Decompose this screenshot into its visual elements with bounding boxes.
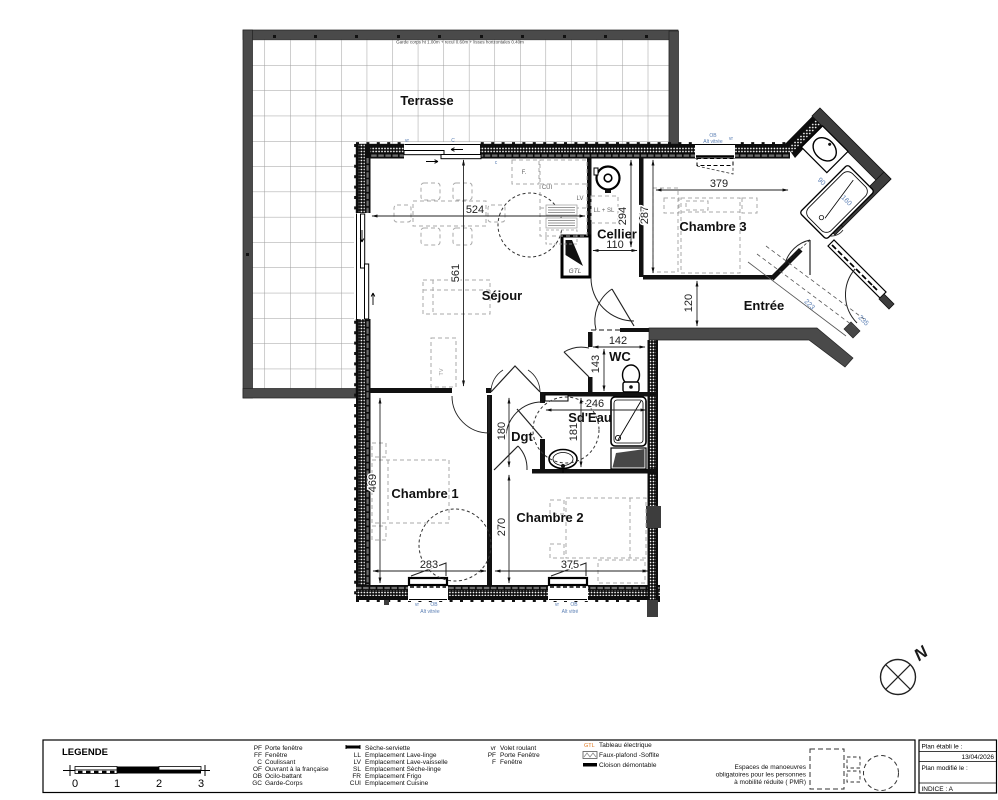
svg-text:F.: F. [522,170,527,176]
svg-text:Ocilo-battant: Ocilo-battant [265,773,302,780]
svg-text:379: 379 [710,178,728,190]
svg-text:120: 120 [683,294,695,312]
svg-text:Porte fenêtre: Porte fenêtre [265,745,303,752]
svg-text:vr: vr [405,138,410,144]
svg-text:Porte Fenêtre: Porte Fenêtre [500,752,540,759]
svg-text:LEGENDE: LEGENDE [62,747,108,758]
svg-text:2: 2 [156,778,162,790]
svg-text:GTL: GTL [569,268,582,275]
svg-text:1: 1 [114,778,120,790]
svg-text:Volet roulant: Volet roulant [500,745,536,752]
svg-text:vr: vr [555,602,560,608]
svg-text:LV: LV [577,196,584,202]
svg-text:WC: WC [609,349,631,364]
svg-text:SL: SL [353,766,361,773]
svg-text:LL: LL [354,752,362,759]
svg-text:270: 270 [496,518,508,536]
svg-text:13/04/2026: 13/04/2026 [961,754,994,761]
svg-text:vr: vr [415,602,420,608]
svg-text:Ouvrant à la française: Ouvrant à la française [265,766,329,773]
svg-text:GC: GC [252,780,262,787]
svg-text:FR: FR [352,773,361,780]
svg-text:Garde corps ht 1.00m + recul 0: Garde corps ht 1.00m + recul 0.60m + lis… [396,40,524,45]
svg-text:Emplacement Lave-vaisselle: Emplacement Lave-vaisselle [365,759,448,766]
svg-text:Alt vitré: Alt vitré [562,609,579,615]
svg-text:OF: OF [253,766,262,773]
svg-text:Garde-Corps: Garde-Corps [265,780,303,787]
svg-text:Plan établi le :: Plan établi le : [922,744,963,751]
svg-text:142: 142 [609,335,627,347]
svg-text:Fenêtre: Fenêtre [265,752,288,759]
svg-text:Cloison démontable: Cloison démontable [599,762,657,769]
svg-text:287: 287 [639,206,651,224]
svg-text:FF: FF [254,752,262,759]
svg-text:0: 0 [72,778,78,790]
svg-text:PF: PF [488,752,496,759]
svg-text:180: 180 [496,422,508,440]
svg-text:CUI: CUI [350,780,361,787]
svg-text:Séjour: Séjour [482,288,522,303]
svg-text:Sèche-serviette: Sèche-serviette [365,745,411,752]
svg-text:à mobilité réduite ( PMR): à mobilité réduite ( PMR) [734,779,806,786]
svg-text:Emplacement Frigo: Emplacement Frigo [365,773,422,780]
svg-text:Coulissant: Coulissant [265,759,296,766]
svg-text:246: 246 [586,398,604,410]
svg-text:181: 181 [568,423,580,441]
svg-text:LL + SL: LL + SL [594,208,615,214]
svg-text:Emplacement Sèche-linge: Emplacement Sèche-linge [365,766,441,773]
svg-text:561: 561 [450,264,462,282]
svg-text:INDICE : A: INDICE : A [922,786,954,793]
svg-text:Dgt: Dgt [511,429,533,444]
svg-text:375: 375 [561,559,579,571]
svg-text:CUI: CUI [542,185,553,191]
svg-text:Alt vitrée: Alt vitrée [420,609,440,615]
svg-text:Fenêtre: Fenêtre [500,759,523,766]
svg-text:Entrée: Entrée [744,298,784,313]
svg-text:OB: OB [253,773,262,780]
svg-text:Chambre 2: Chambre 2 [516,510,583,525]
svg-text:Sd'Eau: Sd'Eau [568,410,612,425]
svg-text:Alt vitrée: Alt vitrée [703,139,723,145]
svg-text:Tableau électrique: Tableau électrique [599,742,652,749]
svg-text:Chambre 1: Chambre 1 [391,486,458,501]
svg-text:Espaces de manoeuvres: Espaces de manoeuvres [734,764,806,771]
svg-text:GTL: GTL [584,743,595,749]
svg-text:obligatoires pour les personne: obligatoires pour les personnes [716,772,807,779]
svg-text:143: 143 [590,355,602,373]
svg-text:OB: OB [570,602,578,608]
svg-text:TV: TV [439,368,445,375]
svg-text:Terrasse: Terrasse [400,93,453,108]
svg-text:283: 283 [420,559,438,571]
svg-text:524: 524 [466,204,484,216]
svg-text:3: 3 [198,778,204,790]
svg-text:OB: OB [430,602,438,608]
svg-text:PF: PF [254,745,262,752]
svg-text:469: 469 [367,474,379,492]
svg-text:Emplacement Lave-linge: Emplacement Lave-linge [365,752,437,759]
svg-text:Plan modifié le :: Plan modifié le : [922,765,968,772]
svg-text:Faux-plafond -Soffite: Faux-plafond -Soffite [599,752,660,759]
svg-text:F: F [492,759,496,766]
svg-text:Cellier: Cellier [597,227,637,242]
svg-text:Chambre 3: Chambre 3 [679,219,746,234]
svg-text:vr: vr [729,136,734,142]
svg-text:LV: LV [354,759,362,766]
svg-text:C: C [451,138,455,144]
svg-text:Emplacement Cuisine: Emplacement Cuisine [365,780,429,787]
svg-text:C: C [257,759,262,766]
svg-text:294: 294 [617,207,629,225]
svg-text:vr: vr [491,745,497,752]
